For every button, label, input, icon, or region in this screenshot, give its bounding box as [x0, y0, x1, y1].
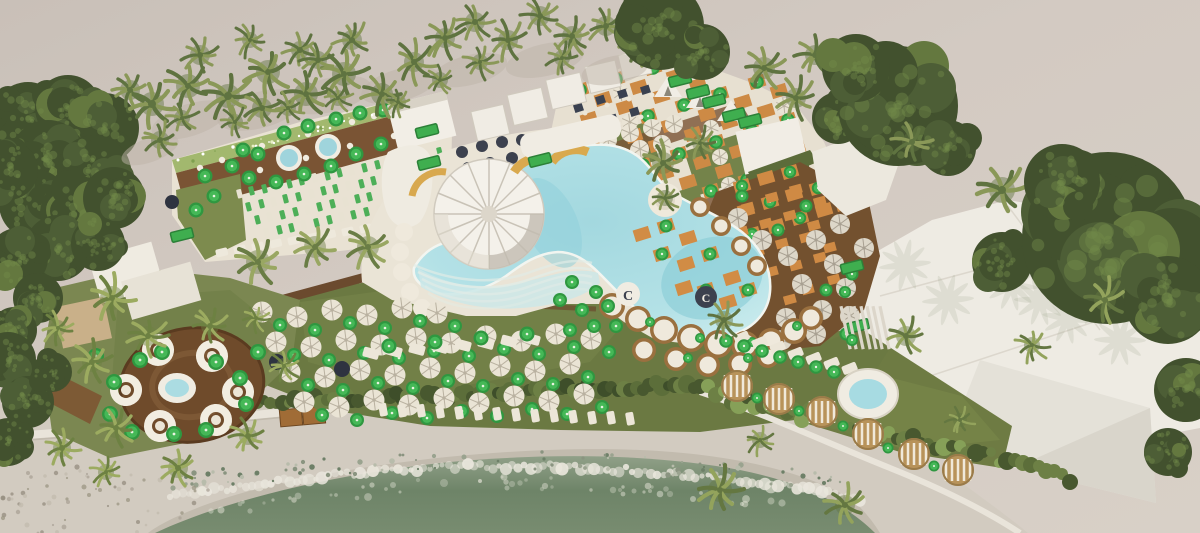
- svg-text:C: C: [623, 289, 633, 304]
- svg-text:C: C: [702, 291, 711, 305]
